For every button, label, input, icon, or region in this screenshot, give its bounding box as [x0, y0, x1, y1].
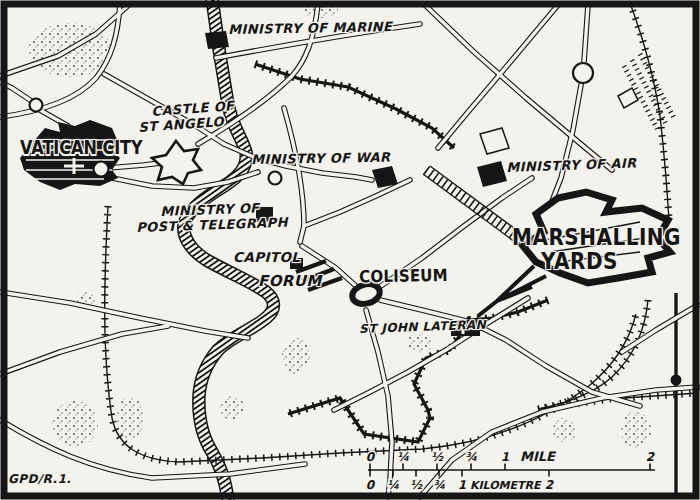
- mile-tick-label: ½: [431, 450, 444, 464]
- ministry-of-war-building-icon: [372, 166, 398, 188]
- rome-target-map: 0 ¼ ½ ¾ 1 2 MILE 0 ¼ ½ ¾ 1 2 KILOMETRE M…: [0, 0, 700, 500]
- km-tick-label: 1: [458, 478, 466, 492]
- km-tick-label: 0: [366, 478, 376, 492]
- castle-st-angelo-fort-icon: [152, 141, 201, 184]
- ministry-of-air-building-icon: [477, 161, 507, 187]
- km-tick-label: ¾: [433, 478, 445, 492]
- km-tick-label: ¼: [387, 478, 399, 492]
- mile-tick-marks: [370, 464, 650, 471]
- plaza-node-icon: [269, 172, 282, 185]
- map-label-forum: FORUM: [258, 274, 322, 289]
- railway-station-dot: [671, 375, 682, 386]
- map-label-ministry-of-war: MINISTRY OF WAR: [251, 151, 390, 166]
- marshalling-yards-area: [423, 54, 674, 316]
- roundabout-icon: [573, 63, 593, 83]
- mile-tick-label: ¾: [465, 450, 477, 464]
- st-peters-square-icon: [94, 162, 109, 177]
- mile-unit-label: MILE: [520, 449, 557, 464]
- map-credit-reference: GPD/R.1.: [8, 473, 71, 485]
- mile-tick-label: 0: [366, 450, 376, 464]
- map-label-vatican-city: VATICAN CITY: [20, 139, 143, 158]
- barracks-building-icon: [480, 128, 509, 154]
- mile-tick-label: 2: [646, 450, 656, 464]
- rail-depot-building-icon: [618, 88, 638, 108]
- map-label-coliseum: COLISEUM: [359, 267, 448, 285]
- map-label-capitol: CAPITOL: [233, 251, 300, 265]
- scale-bar: 0 ¼ ½ ¾ 1 2 MILE 0 ¼ ½ ¾ 1 2 KILOMETRE: [366, 449, 656, 492]
- map-label-marshalling-yards: MARSHALLING: [512, 226, 681, 248]
- km-tick-label: 2: [545, 478, 555, 492]
- map-label-ministry-of-marine: MINISTRY OF MARINE: [228, 20, 392, 36]
- plaza-node-icon: [30, 99, 43, 112]
- map-label-marshalling-yards: YARDS: [541, 250, 618, 272]
- ministry-of-marine-building-icon: [205, 31, 229, 49]
- mile-tick-label: ¼: [397, 450, 409, 464]
- kilometre-unit-label: KILOMETRE: [470, 479, 542, 492]
- mile-tick-label: 1: [501, 450, 509, 464]
- kilometre-tick-marks: [370, 470, 549, 477]
- km-tick-label: ½: [410, 478, 423, 492]
